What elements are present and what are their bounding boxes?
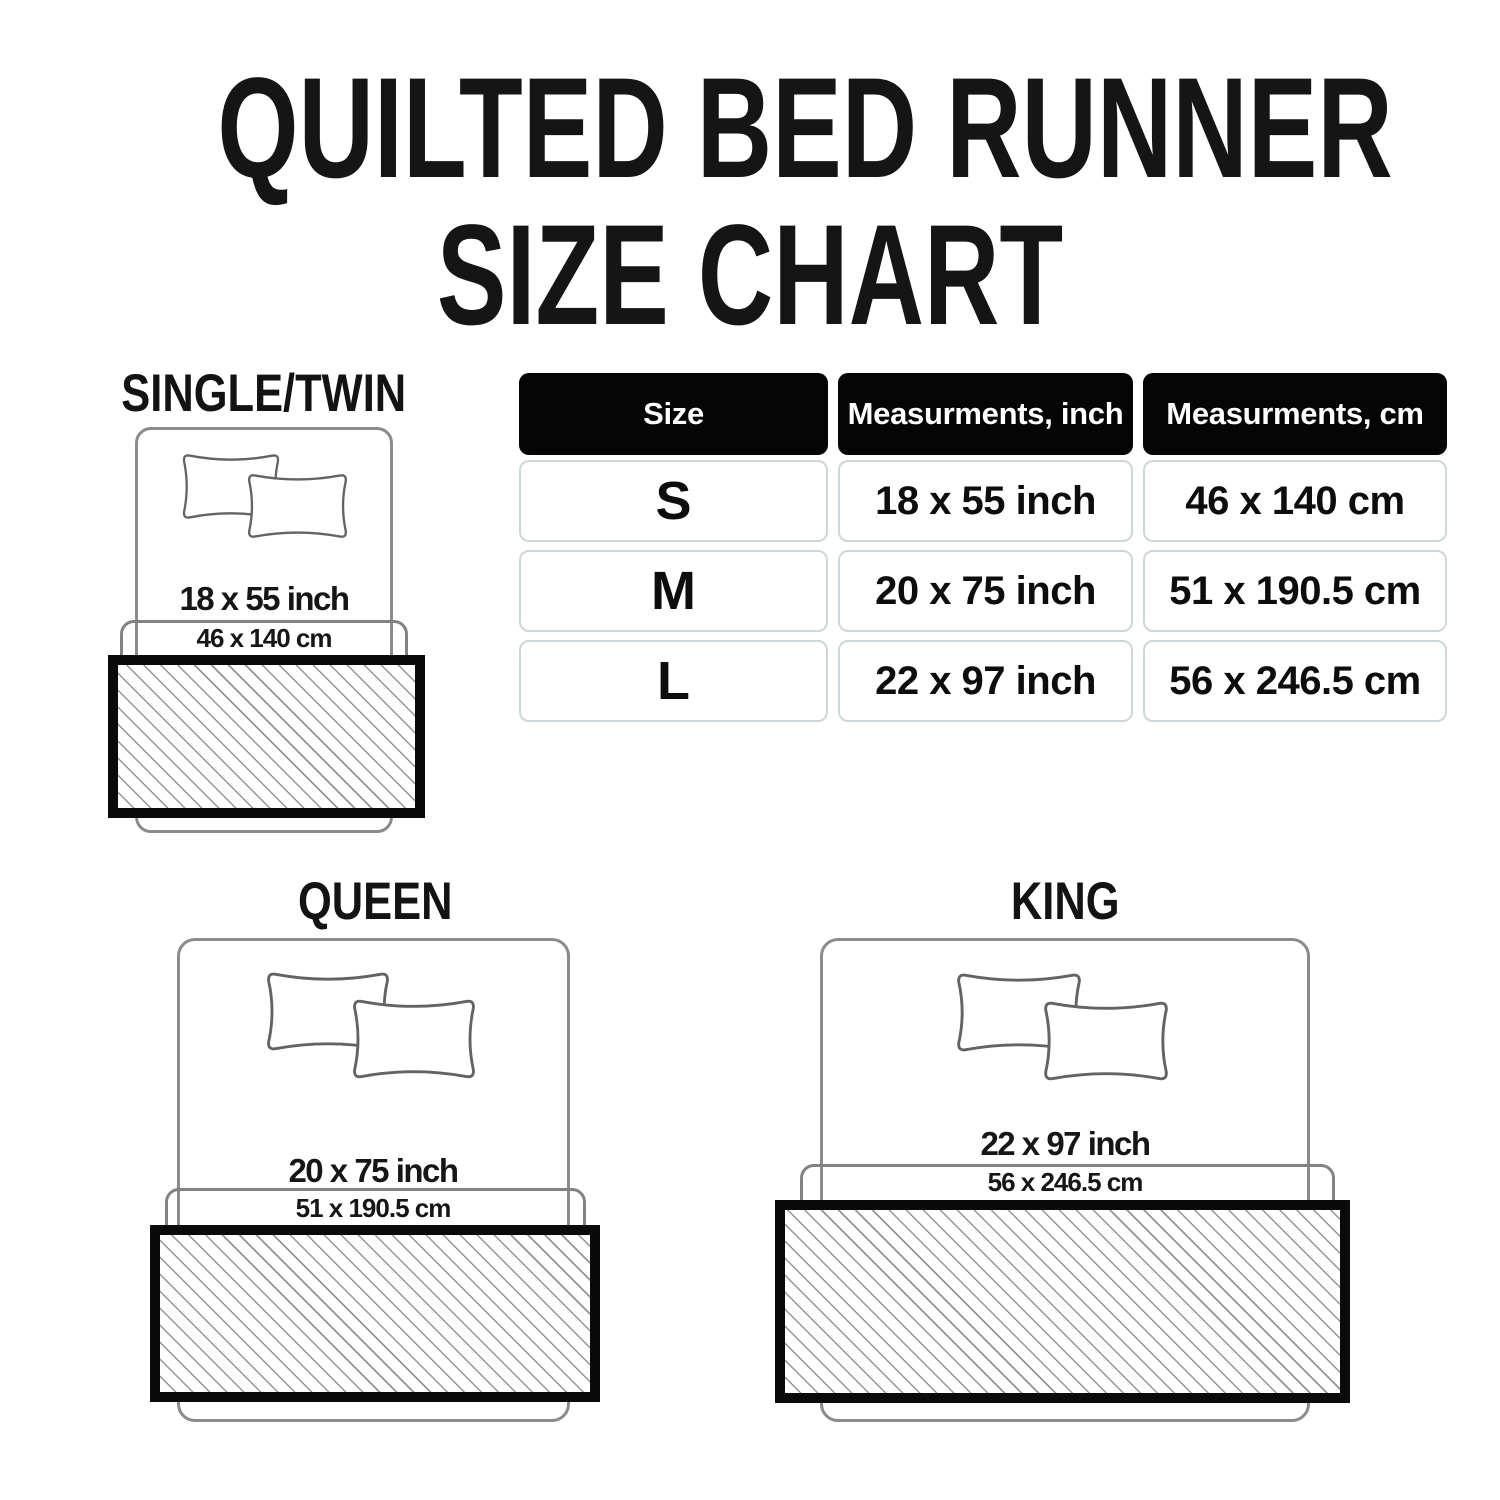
quilted-runner-swatch: [108, 655, 425, 818]
quilted-runner-swatch: [775, 1200, 1350, 1403]
page-title: QUILTED BED RUNNER SIZE CHART: [0, 55, 1500, 349]
table-header-cm: Measurments, cm: [1143, 373, 1447, 455]
diagram-label: QUEEN: [225, 874, 525, 930]
table-cell-inch-m: 20 x 75 inch: [838, 550, 1133, 632]
table-cell-cm-l: 56 x 246.5 cm: [1143, 640, 1447, 722]
table-cell-size-m: M: [519, 550, 828, 632]
table-cell-inch-s: 18 x 55 inch: [838, 460, 1133, 542]
runner-size-inch-label: 18 x 55 inch: [114, 581, 414, 617]
pillow-icon: [347, 991, 481, 1087]
diagram-label: SINGLE/TWIN: [84, 366, 444, 422]
page-title-line2: SIZE CHART: [0, 202, 1500, 349]
page-title-line1: QUILTED BED RUNNER: [0, 55, 1500, 202]
table-cell-cm-m: 51 x 190.5 cm: [1143, 550, 1447, 632]
runner-size-inch-label: 22 x 97 inch: [915, 1126, 1215, 1162]
table-cell-size-l: L: [519, 640, 828, 722]
diagram-label: KING: [915, 874, 1215, 930]
runner-size-cm-label: 51 x 190.5 cm: [223, 1194, 523, 1223]
table-header-inch: Measurments, inch: [838, 373, 1133, 455]
pillow-icon: [1038, 993, 1174, 1089]
pillow-icon: [243, 467, 352, 545]
size-chart-infographic: QUILTED BED RUNNER SIZE CHART Size Measu…: [0, 0, 1500, 1500]
runner-size-cm-label: 56 x 246.5 cm: [915, 1168, 1215, 1197]
table-header-size: Size: [519, 373, 828, 455]
runner-size-cm-label: 46 x 140 cm: [114, 624, 414, 653]
table-cell-size-s: S: [519, 460, 828, 542]
quilted-runner-swatch: [150, 1225, 600, 1402]
table-cell-cm-s: 46 x 140 cm: [1143, 460, 1447, 542]
runner-size-inch-label: 20 x 75 inch: [223, 1153, 523, 1189]
table-cell-inch-l: 22 x 97 inch: [838, 640, 1133, 722]
